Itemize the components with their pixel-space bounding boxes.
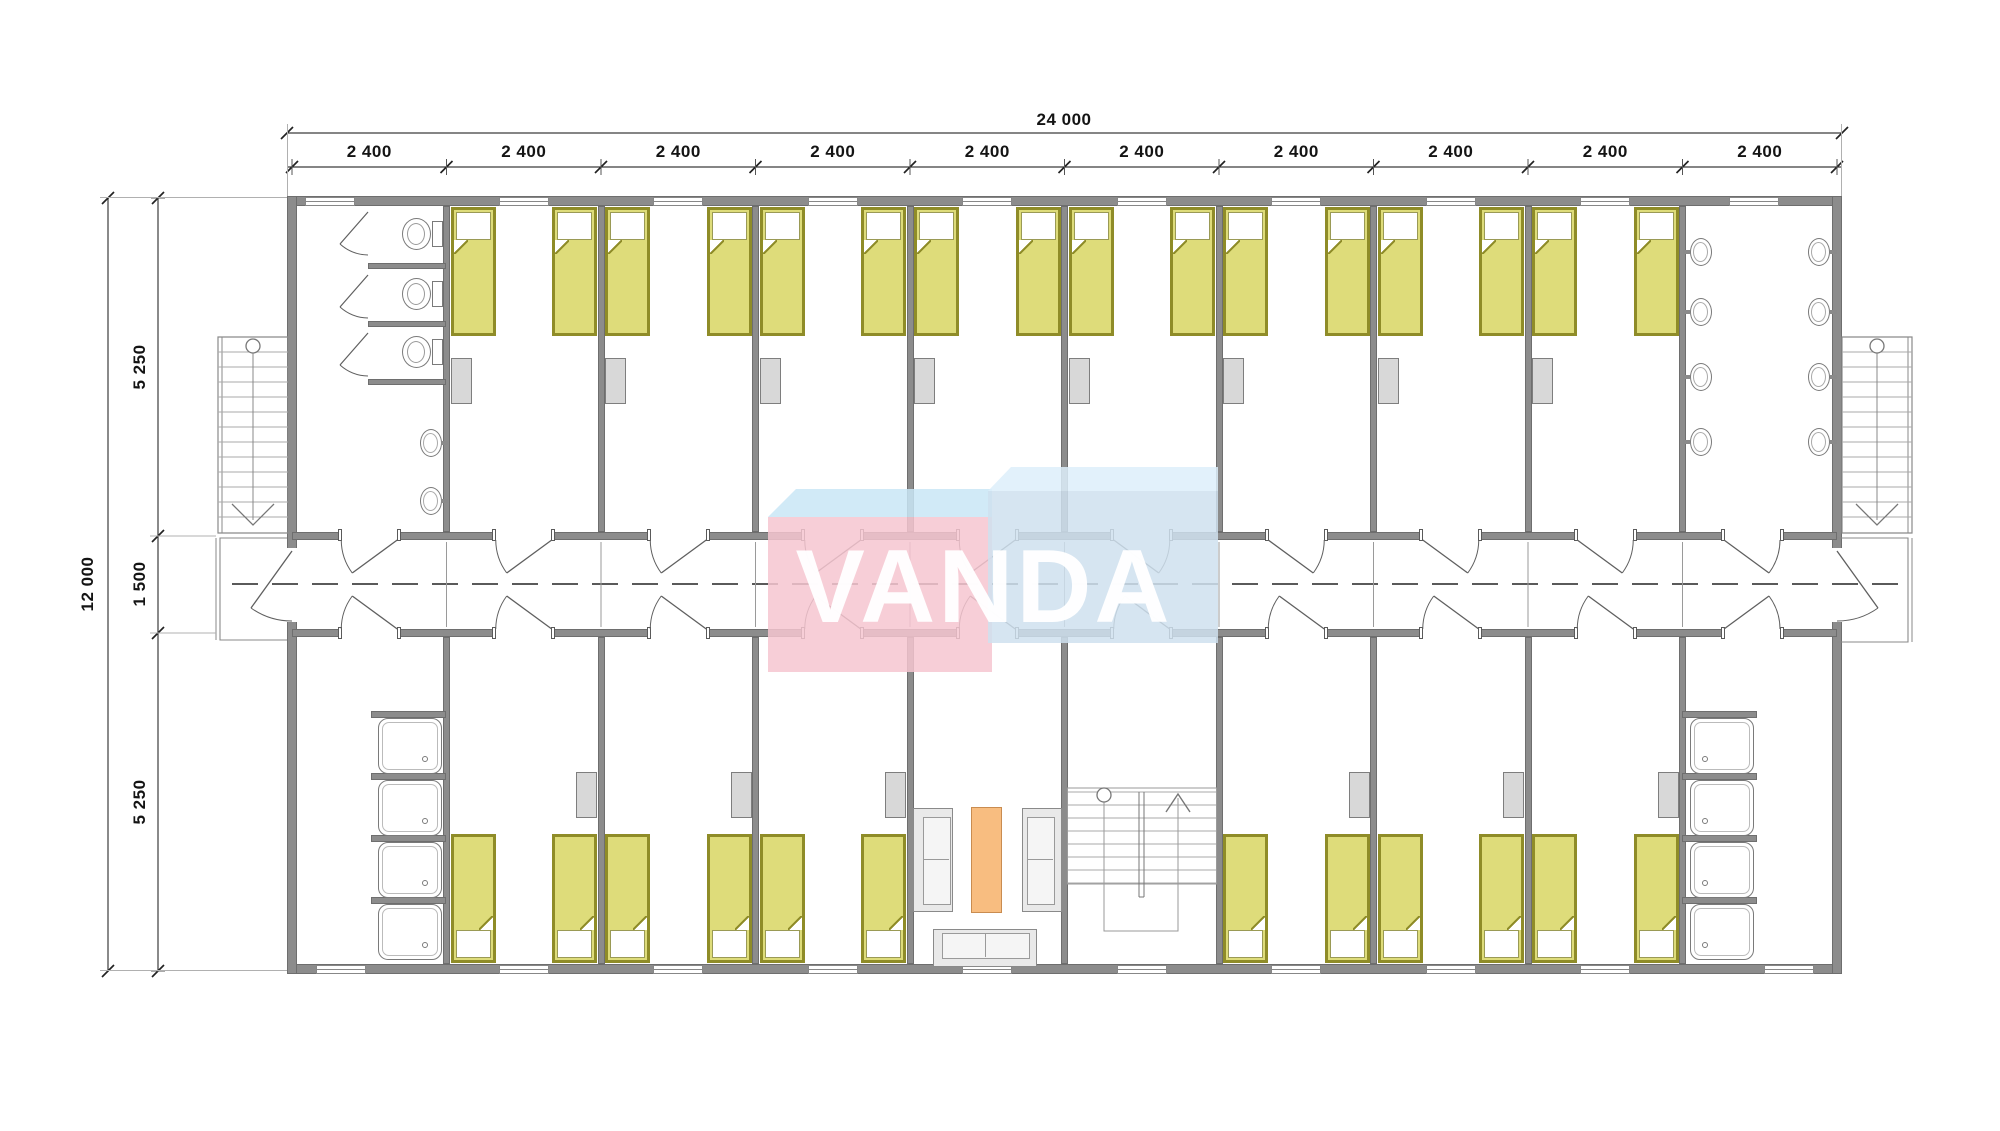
logo-blue-band <box>988 467 1218 491</box>
stall-door-leaf <box>340 275 368 307</box>
stair-walkline-start <box>1870 339 1884 353</box>
dim-bay-width: 2 400 <box>501 142 546 162</box>
door-leaf <box>1279 596 1324 629</box>
logo-sky-band <box>768 489 992 517</box>
door-swing-arc <box>251 608 292 621</box>
door-leaf <box>1588 596 1633 629</box>
door-swing-arc <box>341 596 352 629</box>
dim-corridor-width: 1 500 <box>130 561 150 606</box>
stall-door-arc <box>340 365 368 376</box>
floor-plan-canvas: 24 000 2 4002 4002 4002 4002 4002 4002 4… <box>0 0 2000 1131</box>
stall-door-arc <box>340 244 368 255</box>
door-swing-arc <box>1313 540 1324 573</box>
dim-depth-bottom: 5 250 <box>130 779 150 824</box>
dim-overall-width: 24 000 <box>1037 110 1092 130</box>
door-swing-arc <box>496 596 507 629</box>
door-swing-arc <box>1268 596 1279 629</box>
door-leaf <box>507 596 552 629</box>
door-leaf <box>1837 551 1878 608</box>
dim-bay-width: 2 400 <box>810 142 855 162</box>
dim-depth-top: 5 250 <box>130 344 150 389</box>
door-swing-arc <box>1837 608 1878 621</box>
stall-door-arc <box>340 307 368 318</box>
stair-walkline-start <box>246 339 260 353</box>
door-leaf <box>352 540 397 573</box>
door-leaf <box>661 540 706 573</box>
dim-bay-width: 2 400 <box>1583 142 1628 162</box>
door-swing-arc <box>1577 596 1588 629</box>
door-leaf <box>1724 540 1769 573</box>
door-leaf <box>1724 596 1769 629</box>
dim-bay-width: 2 400 <box>1274 142 1319 162</box>
dim-overall-depth: 12 000 <box>78 557 98 612</box>
door-leaf <box>1423 540 1468 573</box>
door-leaf <box>661 596 706 629</box>
stall-door-leaf <box>340 333 368 365</box>
door-swing-arc <box>1769 540 1780 573</box>
dim-bay-width: 2 400 <box>1428 142 1473 162</box>
entrance-landing-right <box>1837 538 1908 642</box>
door-swing-arc <box>496 540 507 573</box>
stall-door-leaf <box>340 212 368 244</box>
door-swing-arc <box>1468 540 1479 573</box>
dim-bay-width: 2 400 <box>965 142 1010 162</box>
door-swing-arc <box>1423 596 1434 629</box>
door-leaf <box>1434 596 1479 629</box>
dim-bay-width: 2 400 <box>1737 142 1782 162</box>
door-leaf <box>352 596 397 629</box>
dim-bay-width: 2 400 <box>656 142 701 162</box>
door-swing-arc <box>650 596 661 629</box>
door-swing-arc <box>650 540 661 573</box>
dim-bay-width: 2 400 <box>347 142 392 162</box>
door-leaf <box>251 551 292 608</box>
door-swing-arc <box>341 540 352 573</box>
internal-stair-treads <box>1068 792 1216 883</box>
door-swing-arc <box>1769 596 1780 629</box>
dim-bay-width: 2 400 <box>1119 142 1164 162</box>
door-leaf <box>507 540 552 573</box>
door-leaf <box>1577 540 1622 573</box>
entrance-landing-left <box>220 538 287 640</box>
door-swing-arc <box>1622 540 1633 573</box>
door-leaf <box>1268 540 1313 573</box>
stair-walkline-start <box>1097 788 1111 802</box>
logo-wordmark: VANDA <box>751 534 1217 644</box>
